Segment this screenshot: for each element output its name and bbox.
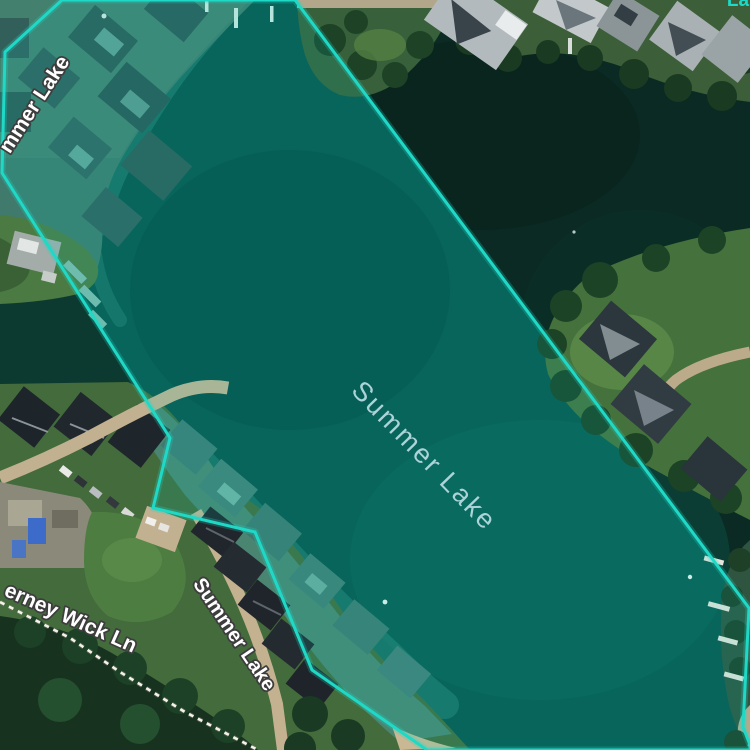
satellite-map-canvas[interactable]: Summer Lake Summer Lake erney Wick Ln mm…	[0, 0, 750, 750]
corner-label-fragment: La	[727, 0, 750, 11]
map-tiles: Summer Lake Summer Lake erney Wick Ln mm…	[0, 0, 750, 750]
